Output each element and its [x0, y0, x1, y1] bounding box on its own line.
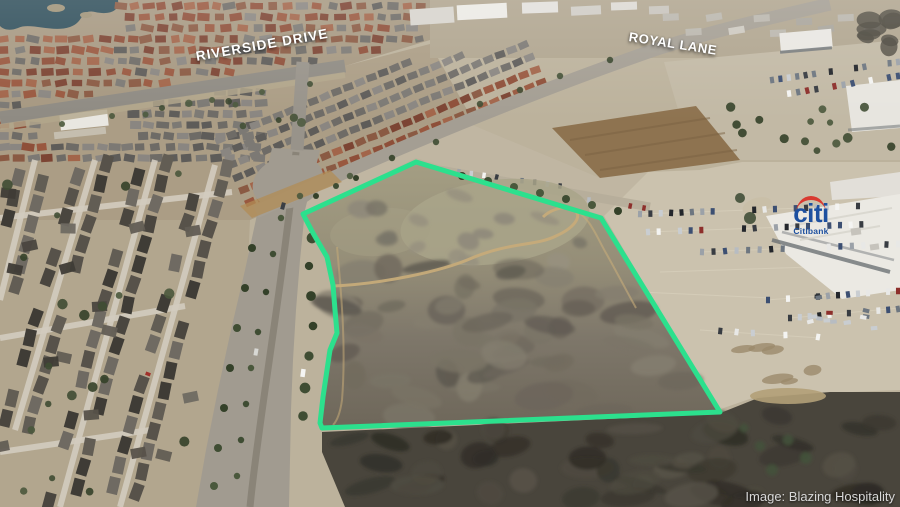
aerial-photo — [0, 0, 900, 507]
tree — [744, 212, 756, 224]
aerial-photo-stage: RIVERSIDE DRIVE ROYAL LANE citi Citibank… — [0, 0, 900, 507]
woods-clearing — [750, 388, 826, 404]
citi-wordmark: citi — [783, 200, 839, 227]
atmospheric-haze — [0, 0, 900, 120]
rooftop-unit — [850, 227, 861, 235]
citibank-logo: citi Citibank — [783, 197, 839, 236]
tree — [735, 193, 745, 203]
image-credit: Image: Blazing Hospitality — [745, 489, 895, 504]
rooftop-unit — [870, 243, 880, 250]
